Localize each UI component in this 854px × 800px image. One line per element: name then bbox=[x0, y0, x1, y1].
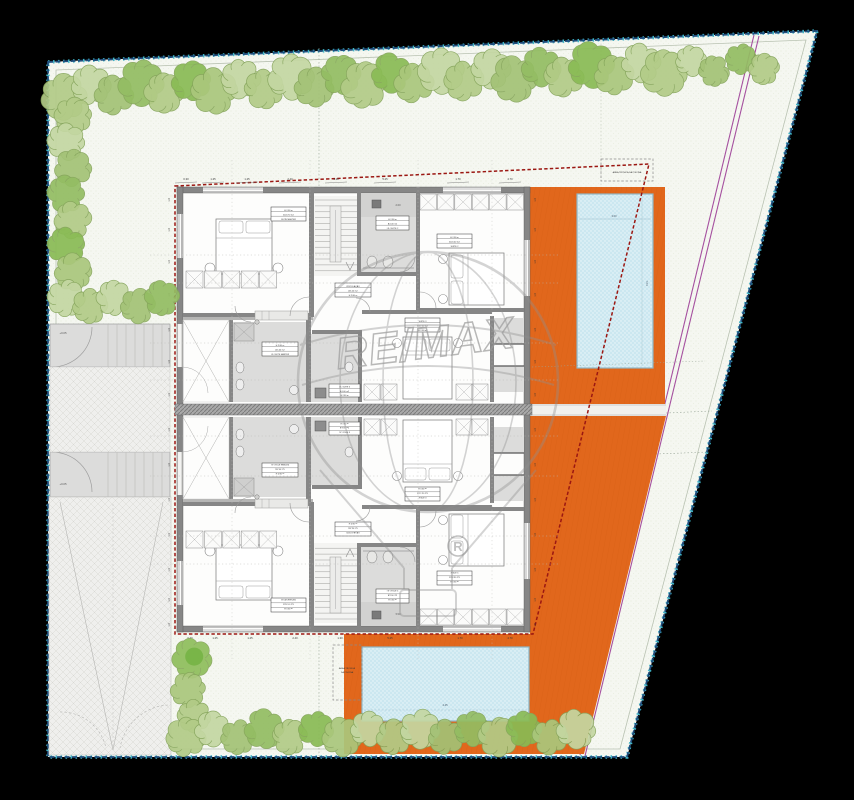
svg-text:H 2.80 m: H 2.80 m bbox=[276, 345, 285, 347]
svg-text:I.S. SUITE MASTER: I.S. SUITE MASTER bbox=[271, 353, 290, 356]
svg-text:5.25: 5.25 bbox=[382, 177, 388, 181]
svg-text:0.30: 0.30 bbox=[183, 177, 189, 181]
svg-text:1.25: 1.25 bbox=[247, 636, 253, 640]
svg-text:1.70: 1.70 bbox=[455, 177, 461, 181]
svg-text:+0.05: +0.05 bbox=[59, 331, 67, 335]
svg-text:A 5.00 m2: A 5.00 m2 bbox=[275, 348, 285, 351]
svg-text:H 2.80 m: H 2.80 m bbox=[450, 237, 459, 239]
svg-text:H 2.80 m: H 2.80 m bbox=[388, 219, 397, 221]
svg-text:1.25: 1.25 bbox=[210, 177, 216, 181]
svg-text:1.25: 1.25 bbox=[212, 636, 218, 640]
svg-text:DA PISCINA: DA PISCINA bbox=[341, 671, 354, 674]
svg-text:A 6.00 m2: A 6.00 m2 bbox=[388, 222, 398, 225]
svg-text:SUITE 2: SUITE 2 bbox=[451, 246, 460, 248]
svg-text:I.S. SUITE 2: I.S. SUITE 2 bbox=[387, 228, 399, 230]
svg-text:A 20.70 m2: A 20.70 m2 bbox=[283, 213, 294, 216]
svg-text:5.25: 5.25 bbox=[387, 636, 393, 640]
svg-text:H 2.80 m: H 2.80 m bbox=[349, 295, 358, 297]
svg-text:4.45: 4.45 bbox=[442, 703, 448, 707]
svg-text:2.00: 2.00 bbox=[395, 203, 401, 207]
svg-text:+0.05: +0.05 bbox=[59, 482, 67, 486]
svg-text:2.40: 2.40 bbox=[287, 177, 293, 181]
svg-text:1.30: 1.30 bbox=[337, 636, 343, 640]
svg-text:H 2.80 m: H 2.80 m bbox=[340, 395, 348, 397]
svg-text:CIRCULAÇÃO: CIRCULAÇÃO bbox=[346, 285, 360, 288]
svg-text:A 5.00 m2: A 5.00 m2 bbox=[340, 390, 350, 393]
svg-text:SUITE MASTER: SUITE MASTER bbox=[281, 218, 296, 221]
svg-text:2.40: 2.40 bbox=[292, 636, 298, 640]
svg-text:ÁREA TÉCNICA DA PISCINA: ÁREA TÉCNICA DA PISCINA bbox=[613, 171, 642, 174]
svg-text:A 6.20 m2: A 6.20 m2 bbox=[348, 289, 358, 292]
svg-text:7.04: 7.04 bbox=[645, 280, 649, 286]
svg-text:4.70: 4.70 bbox=[507, 177, 513, 181]
svg-text:ÁREA TÉCNICA: ÁREA TÉCNICA bbox=[339, 667, 356, 670]
svg-text:3.00: 3.00 bbox=[611, 214, 617, 218]
svg-text:R: R bbox=[453, 539, 463, 554]
svg-text:4.70: 4.70 bbox=[507, 636, 513, 640]
svg-text:A 20.40 m2: A 20.40 m2 bbox=[449, 240, 460, 243]
svg-text:1.70: 1.70 bbox=[457, 636, 463, 640]
svg-text:1.30: 1.30 bbox=[333, 177, 339, 181]
svg-text:1.25: 1.25 bbox=[244, 177, 250, 181]
svg-text:H 2.80 m: H 2.80 m bbox=[284, 210, 293, 212]
